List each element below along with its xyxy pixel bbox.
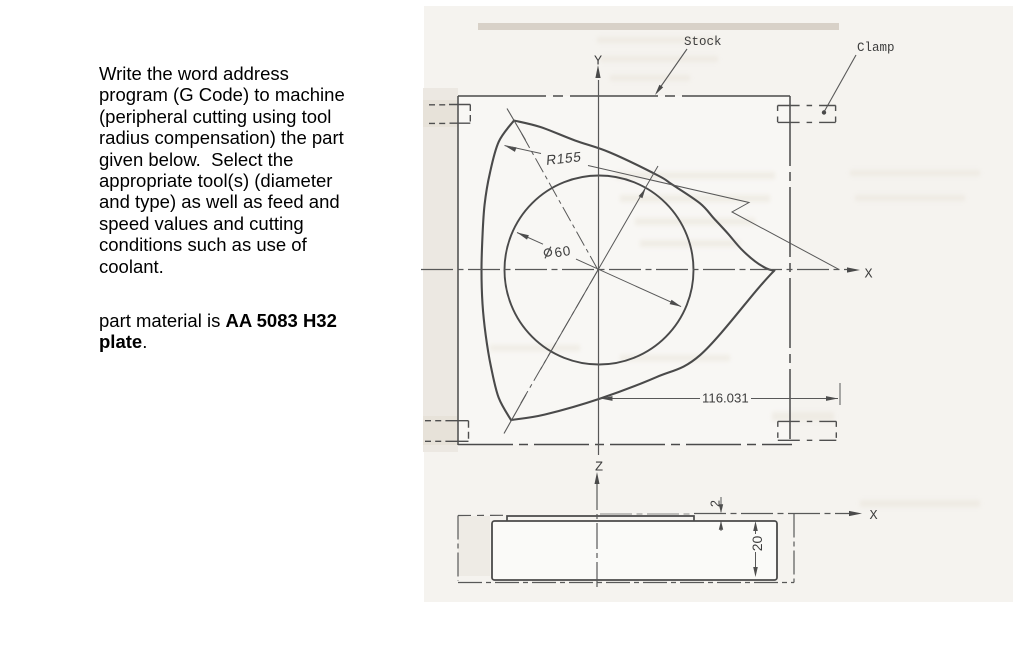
svg-text:Y: Y bbox=[594, 55, 602, 70]
svg-text:X: X bbox=[865, 268, 873, 283]
svg-text:116.031: 116.031 bbox=[702, 391, 749, 406]
svg-text:X: X bbox=[870, 509, 878, 524]
svg-text:Clamp: Clamp bbox=[857, 41, 895, 55]
svg-text:20: 20 bbox=[749, 536, 765, 552]
svg-text:Stock: Stock bbox=[684, 35, 722, 49]
svg-text:60: 60 bbox=[553, 243, 572, 260]
svg-text:Z: Z bbox=[595, 461, 603, 476]
